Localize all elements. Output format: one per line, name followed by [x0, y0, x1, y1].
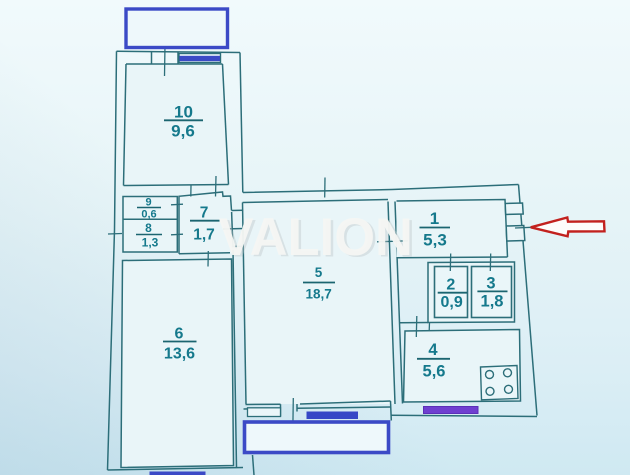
- svg-text:9: 9: [145, 197, 151, 209]
- svg-text:6: 6: [175, 326, 184, 343]
- svg-text:3: 3: [486, 275, 495, 293]
- svg-text:7: 7: [200, 205, 209, 222]
- svg-text:18,7: 18,7: [305, 286, 331, 301]
- svg-text:1,7: 1,7: [193, 227, 215, 244]
- svg-text:5,6: 5,6: [423, 363, 446, 381]
- svg-text:5: 5: [315, 265, 323, 280]
- svg-text:5,3: 5,3: [423, 231, 447, 250]
- svg-text:1,3: 1,3: [142, 236, 159, 250]
- svg-text:8: 8: [145, 221, 152, 235]
- svg-text:13,6: 13,6: [164, 346, 195, 363]
- svg-text:0,9: 0,9: [440, 294, 462, 311]
- svg-text:2: 2: [446, 276, 455, 293]
- svg-text:0,6: 0,6: [141, 209, 156, 221]
- svg-text:9,6: 9,6: [171, 122, 195, 141]
- svg-text:10: 10: [174, 103, 193, 122]
- svg-text:1: 1: [430, 209, 439, 228]
- svg-text:VALION: VALION: [219, 208, 413, 267]
- svg-text:1,8: 1,8: [481, 293, 504, 311]
- svg-text:4: 4: [428, 341, 438, 359]
